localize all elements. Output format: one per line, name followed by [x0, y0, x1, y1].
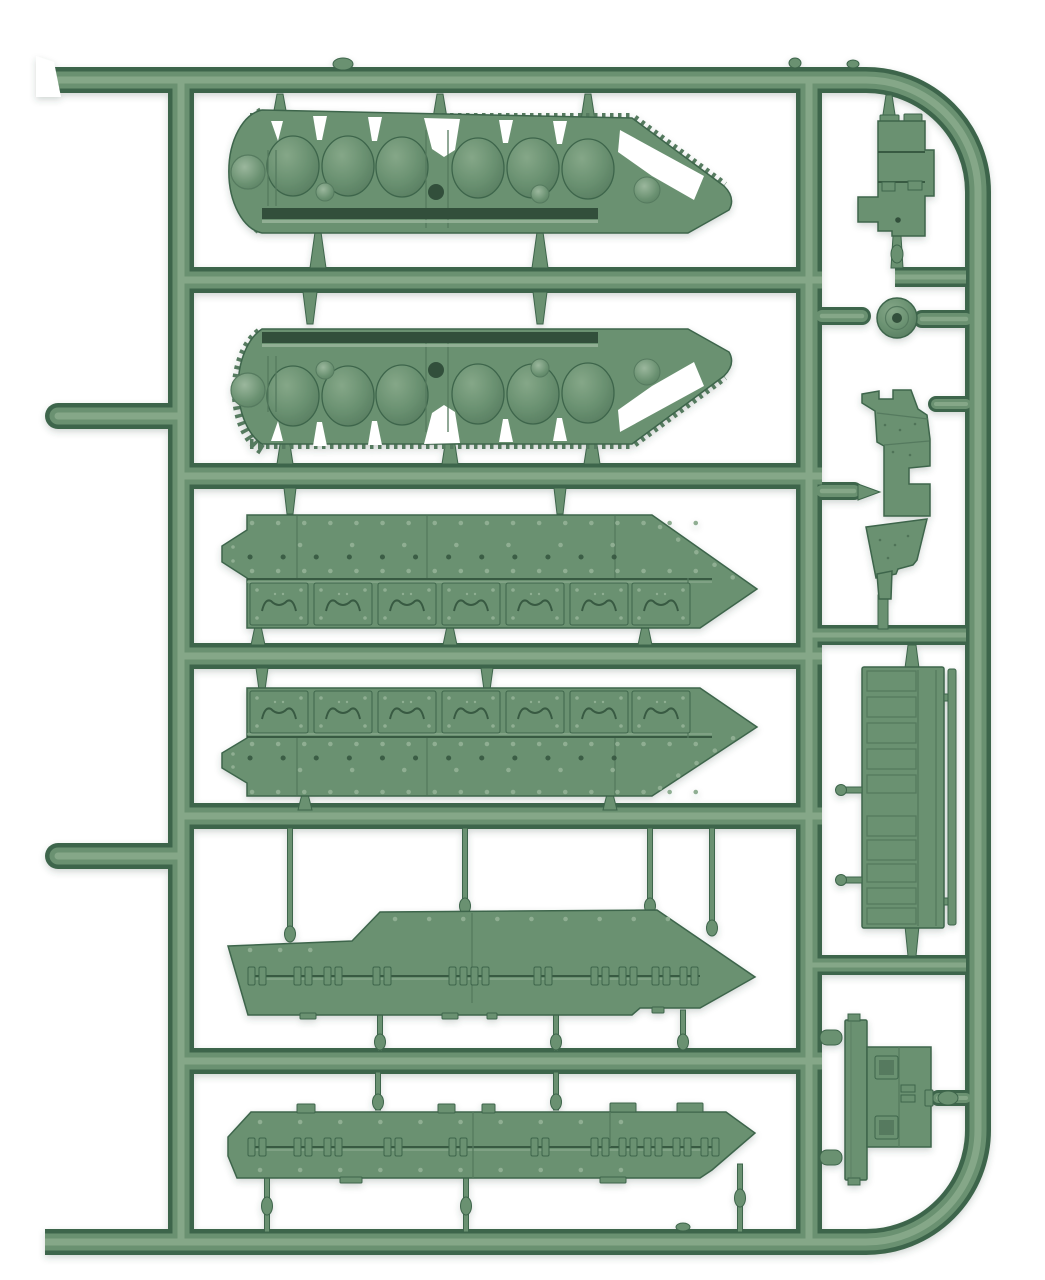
part-track-suspension-unit-bottom	[231, 329, 732, 450]
axle-hole	[428, 362, 444, 378]
part-stepped-hull-deck	[228, 910, 755, 1019]
hull-slot-top	[262, 208, 598, 219]
part-track-suspension-unit-top	[229, 110, 732, 233]
deck-side-knobs	[836, 785, 863, 886]
runner-frame	[36, 56, 978, 1242]
part-stowage-box	[858, 114, 934, 236]
part-hull-floor-plate	[228, 1103, 755, 1183]
sprue	[36, 56, 978, 1242]
part-riveted-hull-side-a	[222, 515, 757, 628]
part-hatch-plate	[845, 1014, 933, 1185]
armour-segments-a	[250, 583, 690, 625]
part-riveted-hull-side-b	[222, 688, 757, 796]
armour-segments-b	[250, 691, 690, 733]
sprue-photo	[0, 0, 1045, 1280]
deck-side-rail	[948, 669, 956, 925]
part-road-wheel	[877, 298, 917, 338]
photo-stage	[0, 0, 1045, 1280]
axle-hole	[428, 184, 444, 200]
runner-mid-layer	[45, 80, 978, 1242]
wheel-hub-hole	[892, 313, 902, 323]
hull-slot-bottom	[262, 332, 598, 343]
part-engine-grille-deck	[836, 667, 957, 928]
